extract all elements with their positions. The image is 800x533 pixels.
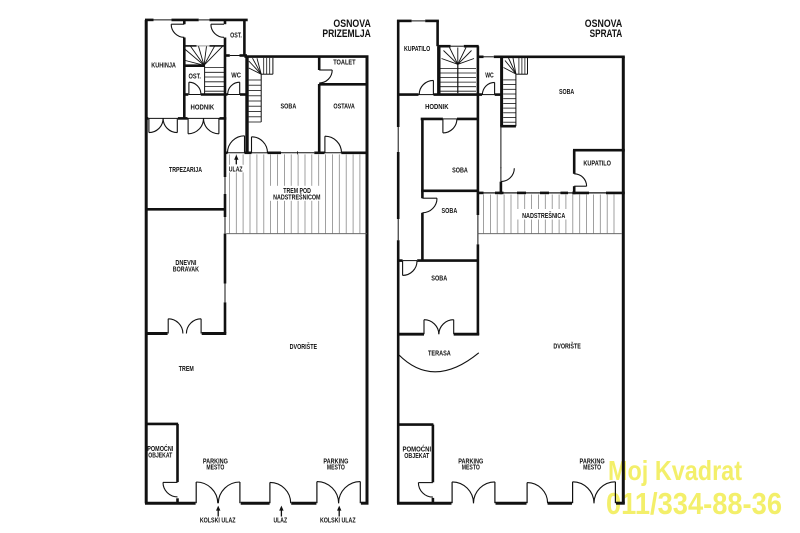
svg-text:KUPATILO: KUPATILO <box>404 46 431 53</box>
svg-text:NADSTREŠNICA: NADSTREŠNICA <box>522 211 565 220</box>
svg-text:KUHINJA: KUHINJA <box>151 62 176 69</box>
svg-text:HODNIK: HODNIK <box>425 104 448 111</box>
svg-text:KUPATILO: KUPATILO <box>583 160 611 167</box>
svg-text:ULAZ: ULAZ <box>229 166 243 173</box>
svg-text:DVORIŠTE: DVORIŠTE <box>553 342 581 351</box>
svg-text:SOBA: SOBA <box>559 89 574 96</box>
svg-text:SOBA: SOBA <box>281 104 297 111</box>
svg-text:ULAZ: ULAZ <box>274 518 288 525</box>
svg-text:DVORIŠTE: DVORIŠTE <box>290 342 318 351</box>
svg-text:PRIZEMLJA: PRIZEMLJA <box>322 28 371 40</box>
svg-text:OBJEKAT: OBJEKAT <box>148 453 173 460</box>
svg-text:011/334-88-36: 011/334-88-36 <box>606 487 782 521</box>
svg-text:TOALET: TOALET <box>333 59 356 66</box>
svg-text:SOBA: SOBA <box>442 208 458 215</box>
svg-text:HODNIK: HODNIK <box>191 104 215 111</box>
svg-text:SPRATA: SPRATA <box>590 28 623 40</box>
svg-text:TERASA: TERASA <box>428 351 451 358</box>
svg-text:BORAVAK: BORAVAK <box>173 267 199 274</box>
svg-text:KOLSKI ULAZ: KOLSKI ULAZ <box>320 518 356 525</box>
svg-text:MESTO: MESTO <box>206 464 224 471</box>
svg-text:OSTAVA: OSTAVA <box>333 104 354 111</box>
svg-text:SOBA: SOBA <box>431 275 447 282</box>
svg-text:TRPEZARIJA: TRPEZARIJA <box>169 167 202 174</box>
svg-text:OST.: OST. <box>230 32 242 39</box>
svg-text:TREM: TREM <box>179 366 194 373</box>
svg-text:NADSTREŠNICOM: NADSTREŠNICOM <box>273 192 321 201</box>
svg-text:MESTO: MESTO <box>583 464 601 471</box>
svg-text:KOLSKI ULAZ: KOLSKI ULAZ <box>200 518 236 525</box>
svg-text:OST.: OST. <box>188 73 201 80</box>
svg-text:MESTO: MESTO <box>327 464 345 471</box>
svg-text:OBJEKAT: OBJEKAT <box>404 453 430 460</box>
svg-text:WC: WC <box>231 73 241 80</box>
svg-text:SOBA: SOBA <box>452 168 468 175</box>
svg-text:MESTO: MESTO <box>462 464 480 471</box>
svg-text:WC: WC <box>485 73 494 80</box>
svg-text:Moj Kvadrat: Moj Kvadrat <box>608 455 742 486</box>
